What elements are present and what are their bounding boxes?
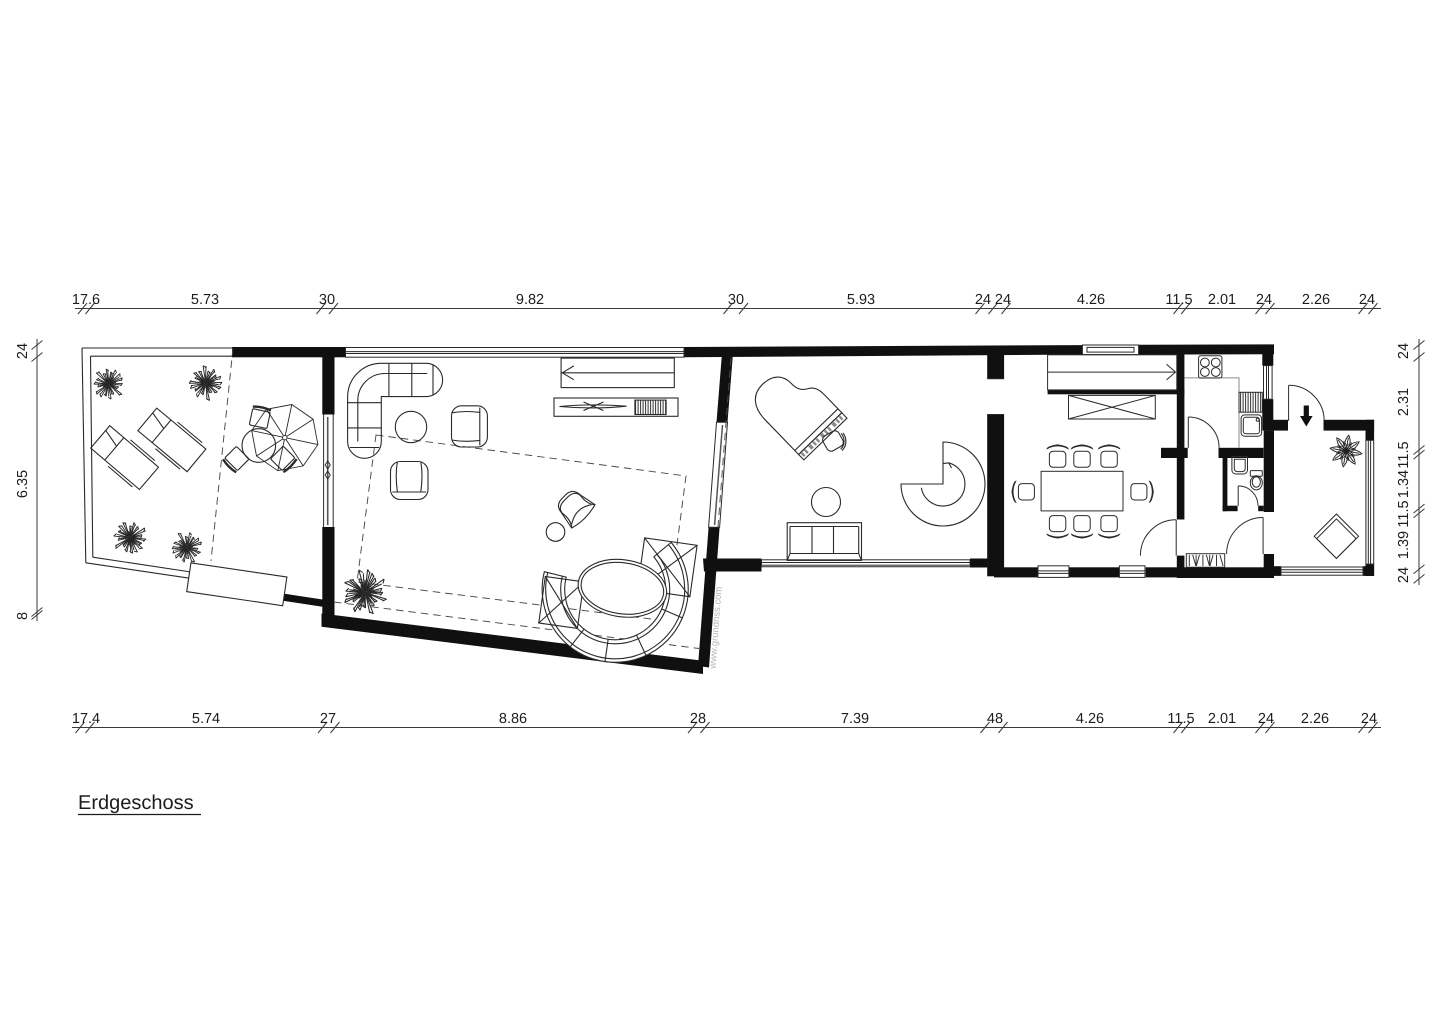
svg-text:5.73: 5.73 [191, 292, 219, 308]
svg-text:2.31: 2.31 [1396, 388, 1412, 416]
svg-text:24: 24 [1361, 711, 1377, 727]
svg-text:6.35: 6.35 [15, 470, 31, 498]
svg-text:5.93: 5.93 [847, 292, 875, 308]
svg-text:24: 24 [1396, 567, 1412, 583]
svg-text:4.26: 4.26 [1076, 711, 1104, 727]
svg-text:4.26: 4.26 [1077, 292, 1105, 308]
svg-text:11.5: 11.5 [1167, 711, 1194, 727]
svg-text:24: 24 [995, 292, 1011, 308]
svg-text:1.34: 1.34 [1396, 470, 1412, 498]
svg-text:24: 24 [15, 343, 31, 359]
svg-text:30: 30 [319, 292, 335, 308]
svg-text:11.5: 11.5 [1165, 292, 1192, 308]
svg-text:30: 30 [728, 292, 744, 308]
svg-text:24: 24 [1396, 343, 1412, 359]
svg-text:9.82: 9.82 [516, 292, 544, 308]
svg-text:5.74: 5.74 [192, 711, 220, 727]
svg-text:48: 48 [987, 711, 1003, 727]
svg-text:7.39: 7.39 [841, 711, 869, 727]
svg-text:24: 24 [1359, 292, 1375, 308]
svg-text:2.01: 2.01 [1208, 292, 1236, 308]
svg-text:2.26: 2.26 [1302, 292, 1330, 308]
svg-text:Erdgeschoss: Erdgeschoss [78, 792, 194, 814]
svg-text:8: 8 [15, 612, 31, 620]
svg-text:17.6: 17.6 [72, 292, 100, 308]
svg-text:2.01: 2.01 [1208, 711, 1236, 727]
svg-text:8.86: 8.86 [499, 711, 527, 727]
svg-text:2.26: 2.26 [1301, 711, 1329, 727]
svg-text:17.4: 17.4 [72, 711, 100, 727]
svg-text:24: 24 [1258, 711, 1274, 727]
svg-text:11.5: 11.5 [1396, 441, 1412, 468]
svg-text:11.5: 11.5 [1396, 500, 1412, 527]
svg-text:27: 27 [320, 711, 336, 727]
svg-text:24: 24 [1256, 292, 1272, 308]
svg-text:28: 28 [690, 711, 706, 727]
svg-text:24: 24 [975, 292, 991, 308]
svg-text:1.39: 1.39 [1396, 531, 1412, 559]
